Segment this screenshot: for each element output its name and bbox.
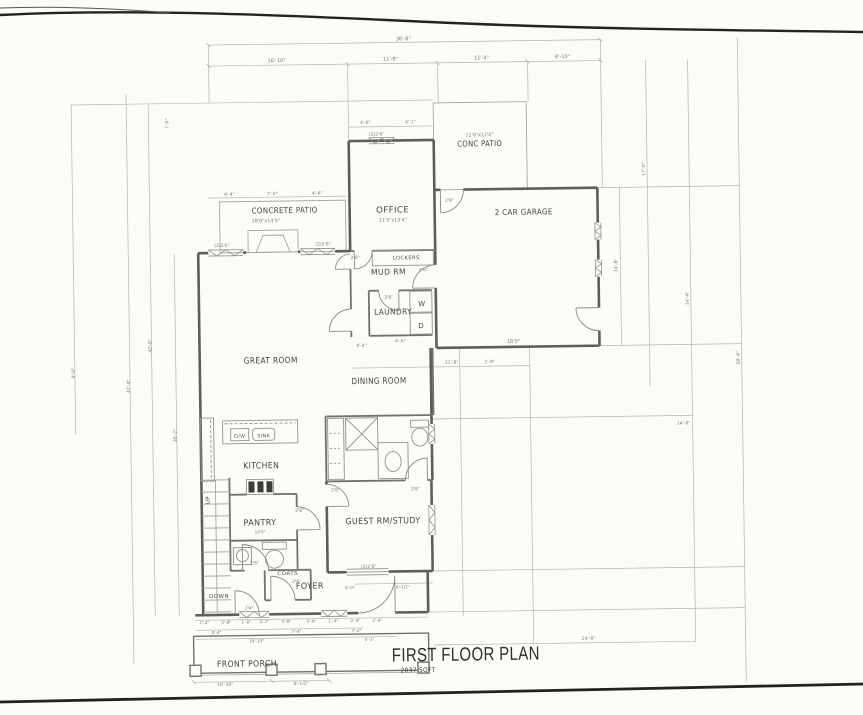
dim-label: 2'-8" (372, 618, 382, 623)
room-kitchen: KITCHEN (243, 461, 279, 472)
scanned-floor-plan-page: FIRST FLOOR PLAN2037 SQFTCONC PATIO11'0"… (0, 0, 863, 715)
dining-opening-door (329, 309, 351, 331)
dim-label: 3'-4" (306, 619, 316, 624)
fixture-washer: W (418, 300, 425, 308)
bath-toilet-tank (411, 420, 429, 427)
dim-label: 4'-6" (395, 338, 406, 344)
dim-label: 4'-1" (405, 119, 416, 125)
front-entry-door (358, 576, 396, 614)
dim-label: 30'-2" (173, 429, 179, 443)
dim-label: 34'-4" (685, 292, 691, 306)
dim-label: 47'-4" (126, 379, 132, 393)
patio-step (256, 235, 290, 252)
interior-walls (226, 250, 440, 601)
dim-label: 2'8" (445, 198, 454, 204)
dimension-lines (70, 36, 746, 691)
bath-toilet (412, 428, 428, 446)
patio-outlines (218, 102, 528, 253)
dim-office: 11'3"x13'4" (379, 217, 407, 223)
dim-label: 17'-0" (641, 162, 647, 176)
dim-label: 2'6" (411, 486, 420, 492)
room-pantry: PANTRY (243, 518, 277, 528)
dim-label: 11'-4" (474, 55, 489, 61)
vanity-sink (385, 451, 401, 471)
bath-vanity (378, 442, 408, 478)
dim-label: 11'-8" (383, 56, 398, 62)
dim-label: 10'-10" (217, 682, 233, 688)
dim-label: 11'-8" (445, 360, 459, 366)
dim-label: 4'-4" (356, 343, 367, 349)
shower-x (346, 418, 378, 450)
dim-label: 8'-1/2" (294, 681, 309, 687)
fixture-lockers: LOCKERS (393, 255, 420, 261)
kitchen-counter (201, 418, 215, 481)
scan-top-edge (0, 12, 863, 32)
room-concrete-patio: CONCRETE PATIO (252, 206, 318, 216)
dim-label: 2'8" (351, 255, 360, 261)
dim-label: 7'-4" (292, 629, 302, 634)
dim-label: 8'-10" (555, 54, 570, 60)
dim-label: 42'-8" (147, 339, 153, 353)
fridge-coil (248, 481, 254, 492)
dim-label: 3'-8" (281, 619, 291, 624)
dim-label: 4'-4" (224, 192, 235, 198)
room-mud: MUD RM (371, 267, 406, 276)
dim-label: 2'4" (245, 605, 254, 610)
title-main: FIRST FLOOR PLAN (392, 643, 540, 666)
dim-label: 4'-6" (360, 120, 371, 126)
bath-walls (325, 415, 432, 481)
dim-label: 7'-0" (267, 191, 278, 197)
room-great: GREAT ROOM (244, 356, 298, 367)
fixture-coats: COATS (277, 571, 298, 577)
dim-pantry: 14'0" (255, 529, 266, 534)
fixture-dryer: D (418, 322, 424, 330)
dim-label: 2'6" (419, 267, 428, 273)
dim-label: (2)2'6" (315, 241, 331, 247)
powder-toilet-tank (262, 542, 286, 549)
title-area: 2037 SQFT (400, 666, 435, 674)
room-office: OFFICE (376, 205, 409, 215)
room-garage: 2 CAR GARAGE (495, 207, 553, 217)
dim-label: 2'6" (295, 508, 304, 514)
room-guest: GUEST RM/STUDY (345, 516, 420, 527)
dim-label: 9'-0" (71, 368, 77, 379)
island-counter-dashed (225, 423, 296, 424)
dim-label: 14'-0" (677, 420, 691, 426)
room-dining: DINING ROOM (351, 376, 406, 387)
garage-service-door (576, 308, 599, 331)
main-house-walls (190, 250, 434, 615)
dim-label: 7'-4" (199, 620, 209, 625)
dim-label: 5'-1" (365, 637, 375, 642)
floor-plan: FIRST FLOOR PLAN2037 SQFTCONC PATIO11'0"… (66, 32, 746, 691)
mud-opening-door (335, 254, 350, 269)
dim-label: 5'-8" (221, 620, 231, 625)
room-porch: FRONT PORCH (217, 659, 277, 670)
dim-label: 4'-6" (312, 190, 323, 196)
dim-label: (2)2'6" (369, 132, 385, 138)
front-window-right (321, 610, 347, 616)
dim-label: 38'-8" (396, 36, 411, 42)
dim-label: 1'-8" (241, 620, 251, 625)
dim-label: 4'-1/2" (396, 584, 410, 589)
fixture-sink: SINK (257, 433, 270, 439)
dim-label: 2'6" (292, 579, 301, 585)
stairs-up: UP (206, 496, 212, 505)
porch-post (315, 663, 326, 674)
guest-side-window (429, 505, 435, 535)
dim-label: 16'-10" (267, 58, 285, 64)
dim-label: 1'-4" (328, 618, 338, 623)
room-conc-patio: CONC PATIO (457, 139, 502, 149)
fridge-coil (257, 481, 263, 492)
patio-stoop (248, 230, 298, 253)
dim-label: (2)2'6" (214, 243, 230, 249)
dim-label: 8'-0" (345, 585, 355, 590)
dim-concrete-patio: 18'0"x14'0" (252, 218, 280, 224)
garage-office-walls (349, 138, 600, 349)
stair-divider (215, 480, 217, 612)
powder-toilet (265, 550, 283, 568)
fixture-dw: D/W (234, 434, 245, 440)
front-window-left (239, 611, 269, 617)
bath-window (429, 424, 435, 444)
dim-label: 8'-4" (212, 630, 222, 635)
fridge-coil (266, 481, 272, 492)
dim-conc-patio: 11'0"x12'0" (465, 132, 493, 138)
dim-label: 3'-7" (259, 619, 269, 624)
dim-label: 1'-8" (484, 359, 495, 365)
powder-door (242, 544, 268, 570)
upper-cabinets-dashed (211, 420, 212, 479)
dim-label: 2'6" (331, 487, 340, 493)
porch-post (190, 665, 201, 676)
dim-label: 3'-4" (350, 618, 360, 623)
labels-layer: FIRST FLOOR PLAN2037 SQFTCONC PATIO11'0"… (66, 32, 746, 690)
stairs-down: DOWN (209, 594, 229, 600)
dim-label: 14'-8" (613, 259, 619, 273)
dim-label: 18'0" (507, 339, 520, 345)
dim-label: 7'-0" (164, 118, 170, 129)
scan-bottom-edge (0, 684, 863, 702)
dim-label: 58'-4" (736, 351, 742, 365)
garage-window-lower (595, 260, 601, 277)
dim-label: 2'6" (384, 295, 393, 301)
dim-label: 19'-10" (249, 638, 264, 643)
floor-plan-drawing: FIRST FLOOR PLAN2037 SQFTCONC PATIO11'0"… (0, 0, 863, 715)
garage-window-upper (595, 223, 601, 240)
dim-label: 2'6" (250, 560, 259, 566)
room-laundry: LAUNDRY (374, 307, 412, 317)
dim-label: 7'-2" (351, 628, 361, 633)
closet-shelves-dashed (330, 433, 342, 463)
dim-label: 24'-8" (582, 636, 596, 642)
dim-label: (2)2'6" (361, 564, 377, 570)
